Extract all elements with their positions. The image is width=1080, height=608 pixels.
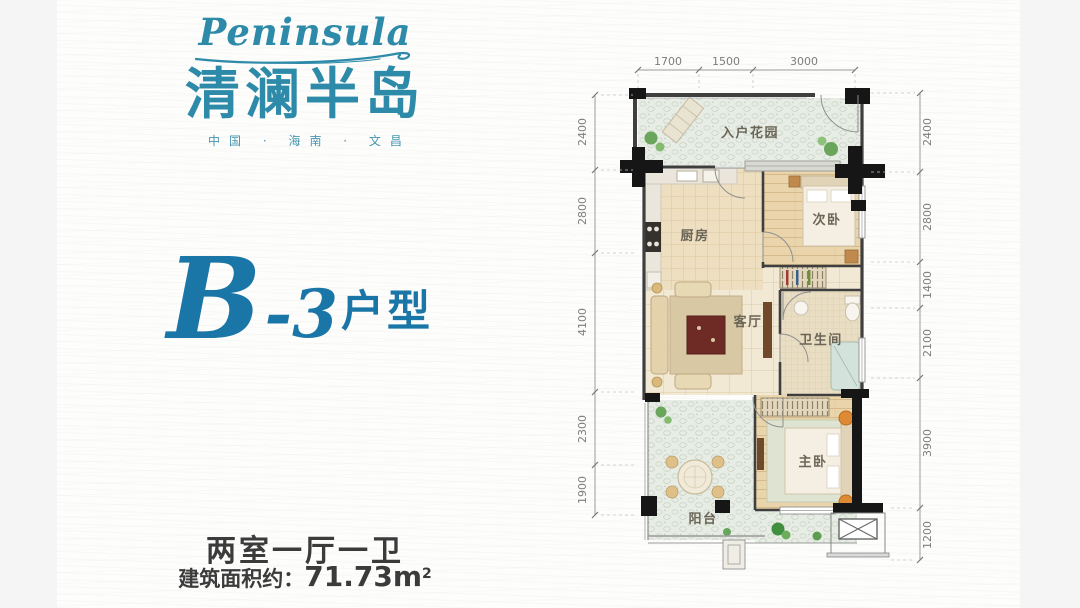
area-superscript: 2 [422,566,432,582]
room-label-master-bedroom: 主卧 [798,454,827,470]
bathtub-icon [831,342,860,390]
dim-left-3: 4100 [576,308,589,336]
dim-top-3: 3000 [790,55,818,68]
dim-right-1: 2400 [921,118,934,146]
dimension-chain-top: 1700 1500 3000 [635,55,858,88]
dim-right-3: 1400 [921,271,934,299]
brand-logo: Peninsula 清澜半岛 中国 · 海南 · 文昌 [150,12,460,149]
dimension-chain-left: 2400 2800 4100 2300 1900 [576,92,637,518]
dim-left-4: 2300 [576,415,589,443]
room-label-entry-garden: 入户花园 [721,125,779,141]
dim-top-2: 1500 [712,55,740,68]
brand-tagline: 中国 · 海南 · 文昌 [150,132,460,149]
room-label-balcony: 阳台 [688,511,717,527]
left-margin [0,0,57,608]
area-line: 建筑面积约：71.73m2 [140,560,470,593]
wardrobe-icon [761,398,829,416]
area-label: 建筑面积约： [178,567,304,591]
brand-script-wordmark: Peninsula [150,12,460,53]
toilet-icon [845,296,860,321]
nightstand-lamp-icon [839,411,853,425]
room-label-second-bedroom: 次卧 [812,212,841,228]
sink-icon [677,171,697,181]
washbasin-icon [794,301,808,315]
room-label-kitchen: 厨房 [680,228,709,244]
floor-plan: 入户花园 厨房 次卧 客厅 卫生间 主卧 阳台 1700 1500 3000 [575,40,985,580]
dimension-chain-right: 2400 2800 1400 2100 3900 1200 [871,90,934,563]
dim-left-1: 2400 [576,118,589,146]
tv-cabinet-icon [763,302,772,358]
unit-title: B -3 户型 [120,248,480,351]
dim-top-1: 1700 [654,55,682,68]
dim-right-5: 3900 [921,429,934,457]
dresser-icon [757,438,764,470]
dim-right-2: 2800 [921,203,934,231]
stove-icon [645,222,661,252]
right-margin [1023,0,1080,608]
drain-ladder-icon [723,540,745,569]
dim-right-4: 2100 [921,329,934,357]
shoe-cabinet-icon [780,267,826,288]
dim-right-6: 1200 [921,521,934,549]
unit-code-rest: -3 [265,281,338,351]
unit-type-suffix: 户型 [341,277,433,351]
dim-left-2: 2800 [576,197,589,225]
sofa-set-icon [651,282,742,389]
unit-code-letter: B [167,248,262,351]
area-value: 71.73m [304,560,422,593]
room-label-bathroom: 卫生间 [799,332,843,348]
brand-name-chinese: 清澜半岛 [150,66,460,124]
room-label-living-room: 客厅 [733,314,762,330]
dim-left-5: 1900 [576,476,589,504]
